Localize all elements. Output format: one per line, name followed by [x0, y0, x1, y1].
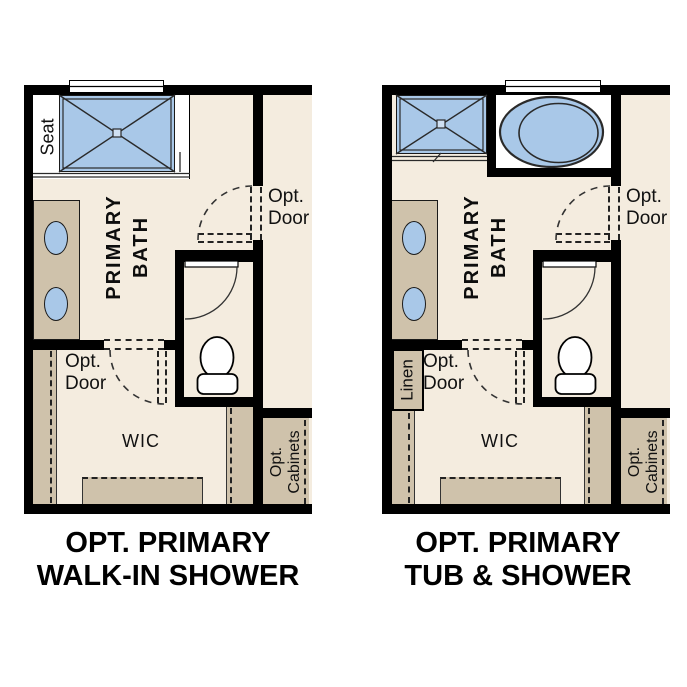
wall-toilet-top	[533, 250, 611, 262]
wall-wic-divider-b	[522, 340, 542, 350]
wic-dresser	[440, 477, 561, 504]
plan-title-line2: TUB & SHOWER	[368, 560, 668, 593]
room-label-line1: PRIMARY	[459, 194, 486, 299]
floor-plan-sheet: Seat PRIMARY BATH Opt. Door Opt. Door WI…	[0, 0, 687, 687]
wall-hall-upper	[611, 94, 621, 186]
wall-left	[382, 85, 392, 514]
opt-cabinets-label-line1: Opt.	[626, 430, 644, 493]
sink	[402, 221, 426, 255]
opt-door-leaf-closed	[462, 339, 522, 350]
opt-door-label-line1: Opt.	[626, 186, 667, 208]
opt-cabinets-label: Opt. Cabinets	[626, 430, 662, 493]
plan-tub-shower: PRIMARY BATH Opt. Door Opt. Door Linen W…	[0, 0, 687, 687]
room-label-primary-bath: PRIMARY BATH	[459, 194, 513, 299]
wic-shelving-dashed-edge	[408, 413, 410, 503]
opt-door-leaf-open	[515, 351, 525, 403]
wall-tub-bottom	[487, 168, 621, 177]
opt-door-label-upper: Opt. Door	[626, 186, 667, 230]
opt-cabinets-label-line2: Cabinets	[644, 430, 662, 493]
shower-pan	[396, 95, 487, 154]
wall-cabinets-top	[621, 408, 670, 418]
plan-title: OPT. PRIMARY TUB & SHOWER	[368, 527, 668, 593]
opt-door-label-line2: Door	[626, 208, 667, 230]
opt-cabinets-dashed-edge	[662, 420, 664, 504]
wall-hall-lower	[611, 240, 621, 504]
wall-tub-left	[487, 94, 496, 177]
room-label-line2: BATH	[486, 194, 513, 299]
opt-door-label-line1: Opt.	[423, 351, 464, 373]
sink	[402, 287, 426, 321]
wall-toilet-left	[533, 250, 542, 403]
opt-door-leaf-open	[556, 233, 610, 243]
wall-bottom	[382, 504, 670, 514]
wall-toilet-bottom	[533, 397, 611, 407]
opt-door-label-line2: Door	[423, 373, 464, 395]
window	[505, 80, 601, 93]
opt-door-label-lower: Opt. Door	[423, 351, 464, 395]
plan-title-line1: OPT. PRIMARY	[368, 527, 668, 560]
wic-label: WIC	[481, 430, 519, 452]
wall-wic-divider-a	[382, 340, 462, 350]
linen-label: Linen	[397, 359, 418, 401]
tub-alcove	[496, 95, 611, 168]
wic-shelving-dashed-edge	[588, 408, 590, 503]
